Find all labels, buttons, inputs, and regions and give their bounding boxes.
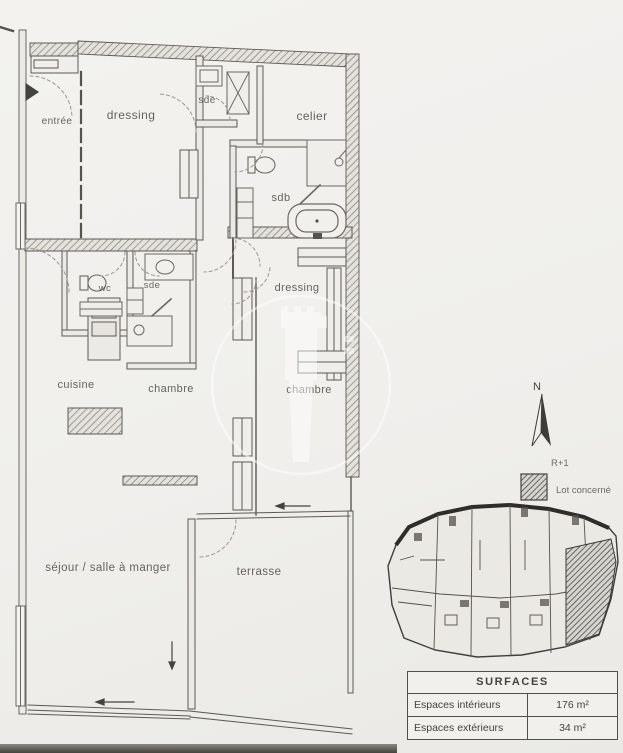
scan-page-edge-shadow	[0, 744, 397, 753]
room-label-terrasse: terrasse	[237, 566, 282, 578]
entrance-arrow-icon	[26, 84, 38, 100]
surfaces-row-value: 34 m²	[527, 717, 617, 739]
surfaces-title: SURFACES	[408, 672, 617, 694]
surfaces-table: SURFACES Espaces intérieurs 176 m² Espac…	[407, 671, 618, 740]
hatched-lot-swatch	[521, 474, 547, 500]
room-label-entree: entrée	[42, 116, 73, 127]
surfaces-row-label: Espaces extérieurs	[408, 717, 527, 739]
room-label-sdb: sdb	[272, 192, 291, 204]
room-label-dressing-right: dressing	[275, 282, 320, 294]
apartment-plan: entrée dressing sde celier sdb wc sde dr…	[0, 27, 390, 734]
kitchen-counter-icon	[68, 298, 122, 434]
north-label: N	[533, 381, 541, 393]
room-label-sde-mid: sde	[144, 280, 161, 291]
legend-level: R+1	[551, 458, 569, 469]
surfaces-row-label: Espaces intérieurs	[408, 694, 527, 716]
lighthouse-watermark-icon	[212, 296, 390, 474]
north-arrow: N	[532, 381, 551, 446]
room-label-dressing-top: dressing	[107, 108, 156, 122]
room-label-chambre-1: chambre	[148, 383, 194, 395]
surfaces-row-value: 176 m²	[527, 694, 617, 716]
legend-lot-label: Lot concerné	[556, 485, 611, 496]
floor-plan-canvas: entrée dressing sde celier sdb wc sde dr…	[0, 0, 623, 753]
north-arrow-icon	[541, 394, 551, 446]
table-row: Espaces intérieurs 176 m²	[408, 694, 617, 717]
room-label-sejour: séjour / salle à manger	[45, 562, 171, 574]
bathtub-icon	[288, 204, 346, 239]
key-plan	[388, 505, 618, 657]
scanned-floor-plan-page: entrée dressing sde celier sdb wc sde dr…	[0, 0, 623, 753]
room-label-cuisine: cuisine	[57, 379, 94, 391]
legend: R+1 Lot concerné	[521, 458, 611, 500]
key-plan-lot-hatched	[566, 539, 616, 645]
room-label-wc: wc	[98, 283, 111, 294]
vanity-icon	[80, 188, 253, 316]
room-label-sde-top: sde	[198, 95, 215, 106]
room-label-celier: celier	[296, 109, 327, 123]
table-row: Espaces extérieurs 34 m²	[408, 717, 617, 739]
